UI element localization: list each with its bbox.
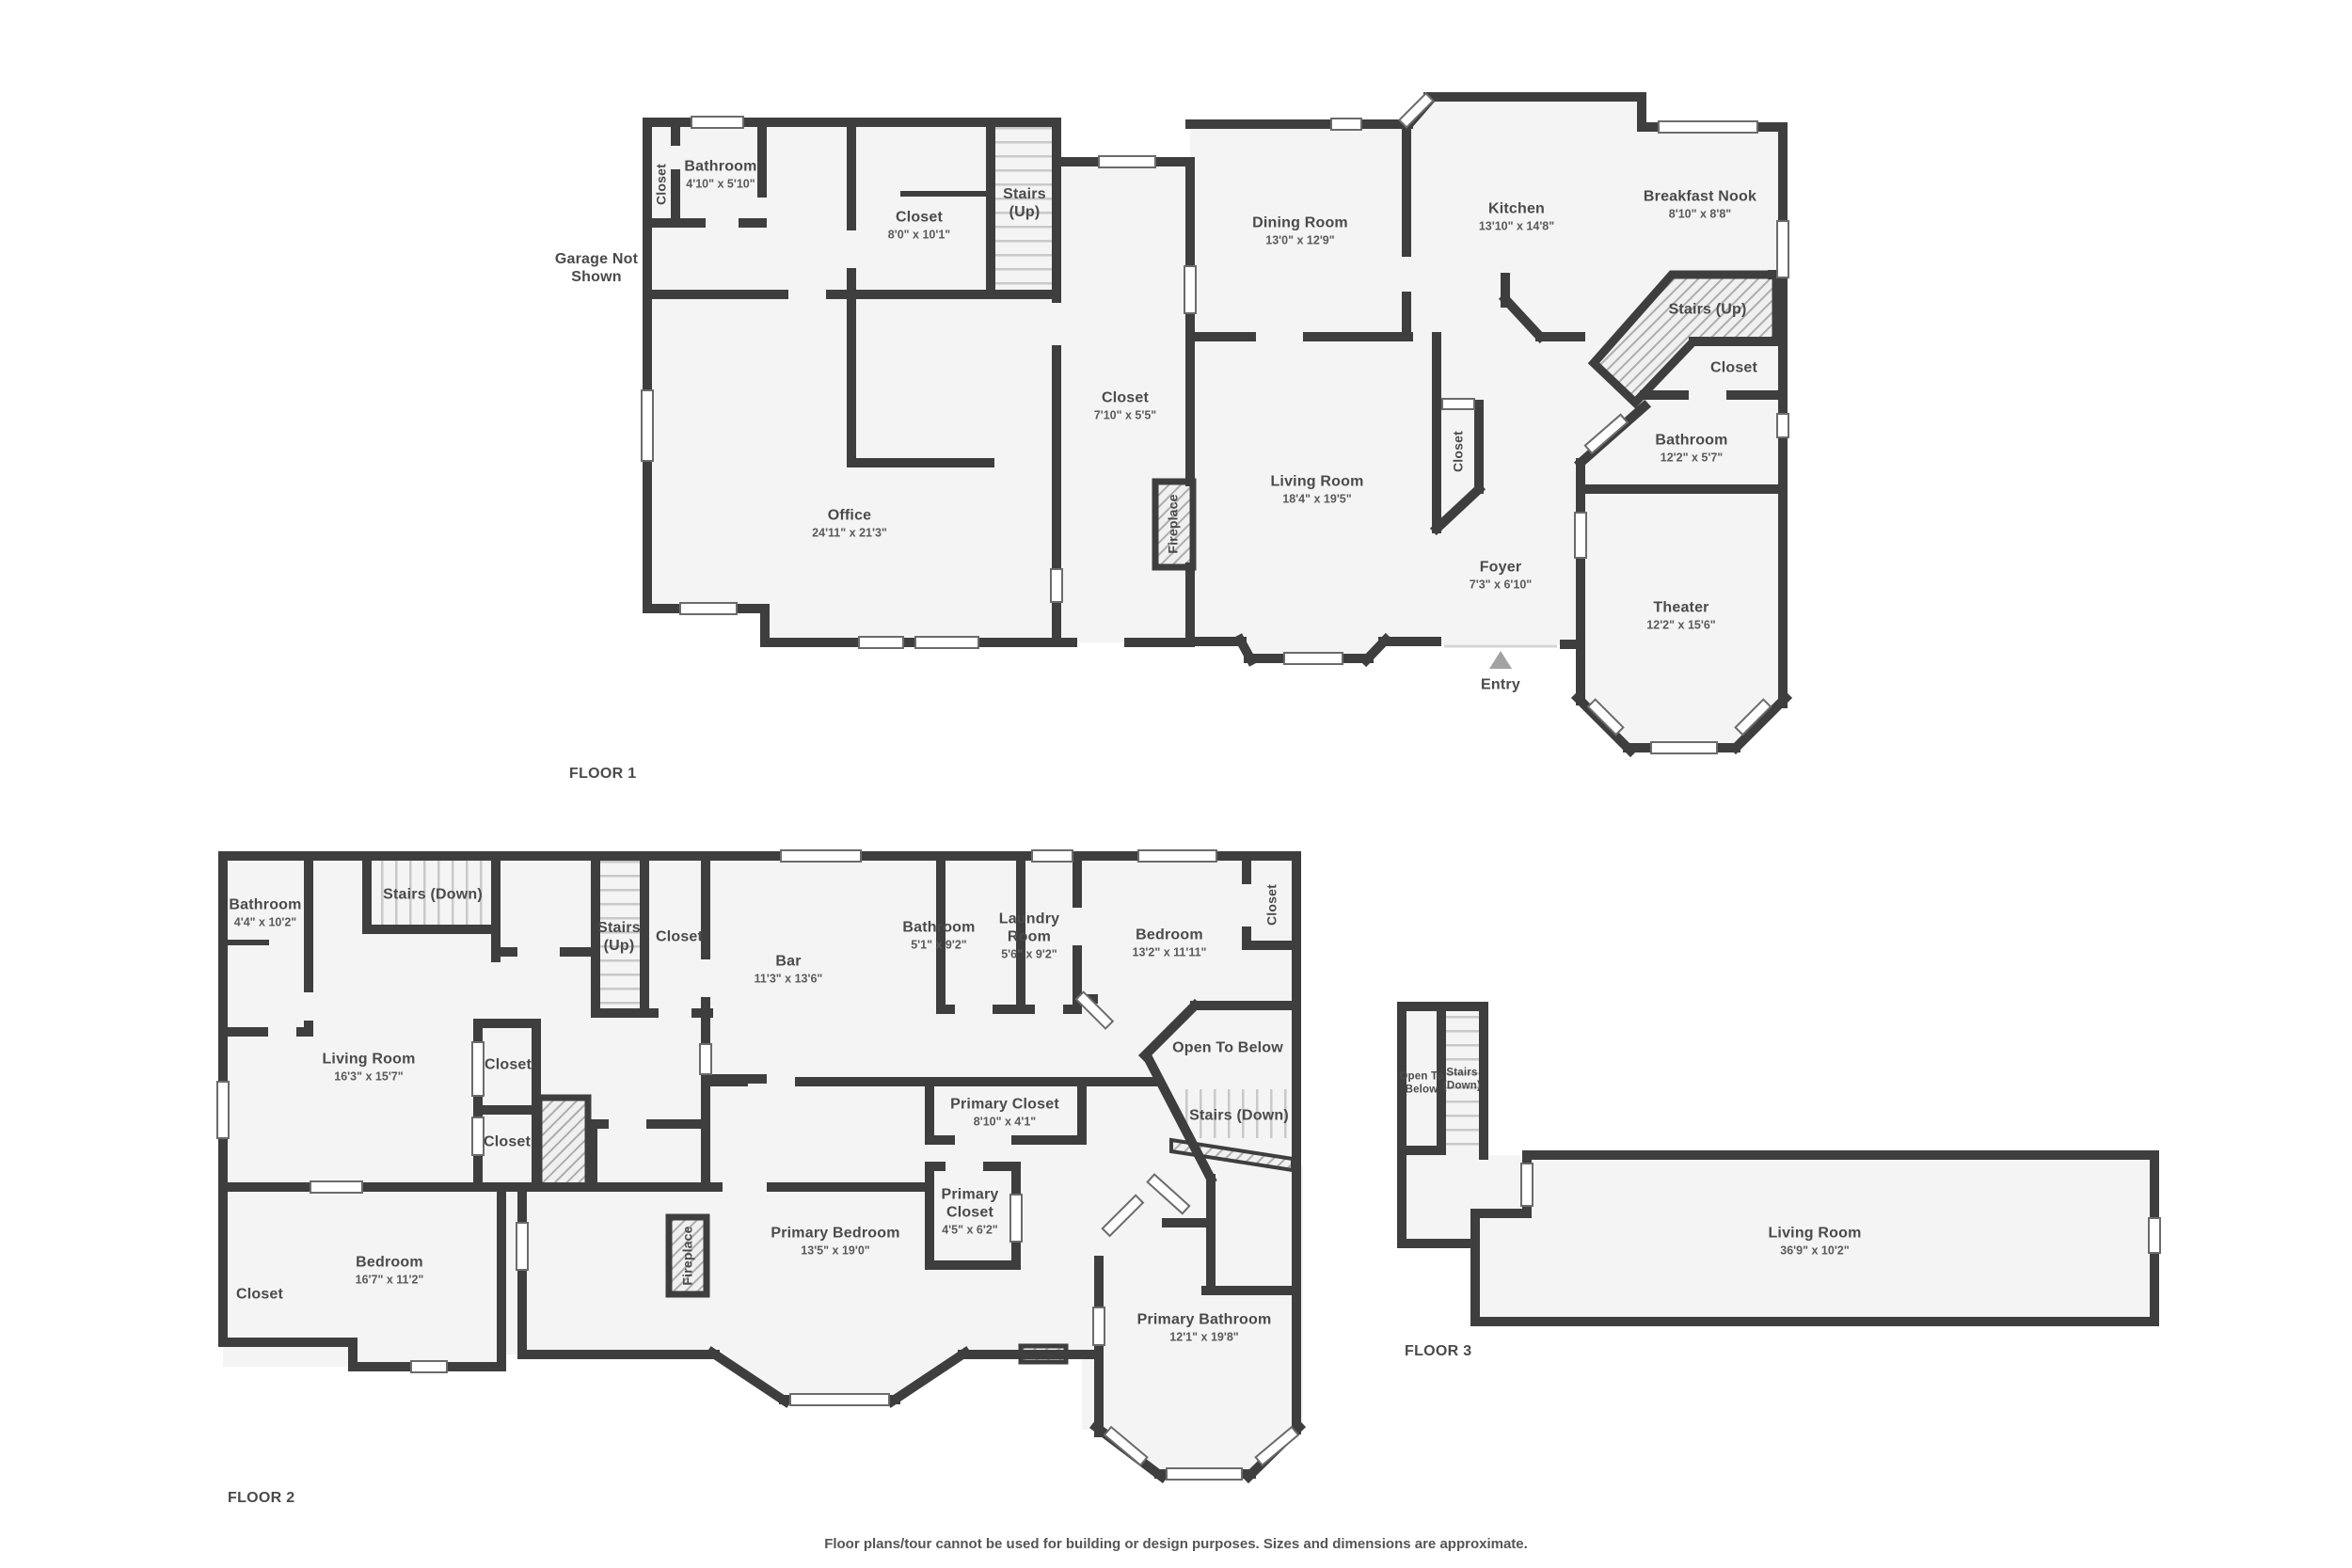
room-label-primary-closet: Primary Closet8'10" x 4'1" [950, 1097, 1059, 1130]
room-name: Living Room [1768, 1226, 1861, 1243]
room-dims: 7'10" x 5'5" [1094, 409, 1156, 423]
room-name: Bathroom [684, 159, 756, 177]
room-label-kitchen: Kitchen13'10" x 14'8" [1479, 201, 1554, 234]
room-dims: 16'7" x 11'2" [356, 1274, 424, 1288]
room-dims: 5'6" x 9'2" [989, 947, 1070, 961]
room-name: Breakfast Nook [1644, 189, 1756, 207]
room-label-foyer: Foyer7'3" x 6'10" [1470, 560, 1532, 593]
room-name: Closet [654, 164, 670, 205]
room-dims: 8'0" x 10'1" [888, 229, 950, 243]
room-name: Stairs (Down) [1189, 1108, 1289, 1126]
room-name: Closet [485, 1057, 532, 1075]
room-label-stairs-down: Stairs (Down) [1189, 1108, 1289, 1126]
room-dims: 13'5" x 19'0" [771, 1244, 899, 1259]
room-name: Laundry Room [989, 911, 1070, 946]
room-label-fireplace: Fireplace [1166, 494, 1182, 553]
room-name: Closet [236, 1287, 283, 1305]
room-dims: 13'10" x 14'8" [1479, 220, 1554, 234]
room-name: Theater [1646, 600, 1715, 618]
room-name: Office [812, 508, 887, 526]
room-dims: 13'2" x 11'11" [1133, 946, 1207, 960]
room-name: Open To Below [1172, 1040, 1283, 1058]
room-name: Bedroom [1133, 927, 1207, 945]
room-dims: 8'10" x 4'1" [950, 1116, 1059, 1130]
room-dims: 12'2" x 5'7" [1655, 451, 1727, 466]
room-dims: 16'3" x 15'7" [322, 1070, 415, 1085]
room-label-closet: Closet [485, 1057, 532, 1075]
room-name: Primary Bedroom [771, 1226, 899, 1243]
room-label-closet: Closet [484, 1134, 531, 1152]
room-dims: 5'1" x 9'2" [902, 939, 975, 953]
room-name: Entry [1481, 677, 1520, 695]
room-name: Bar [755, 954, 823, 972]
room-name: Bedroom [356, 1255, 424, 1273]
room-name: Closet [484, 1134, 531, 1152]
room-dims: 12'2" x 15'6" [1646, 619, 1715, 633]
room-dims: 11'3" x 13'6" [755, 973, 823, 987]
room-name: Closet [1264, 884, 1280, 926]
chimney-shaft-hatch-floor2 [539, 1098, 588, 1187]
room-label-laundry-room: Laundry Room5'6" x 9'2" [989, 911, 1070, 961]
room-label-stairs-down: Stairs (Down) [1434, 1067, 1490, 1092]
room-label-stairs-up: Stairs (Up) [1668, 302, 1746, 320]
room-label-bar: Bar11'3" x 13'6" [755, 954, 823, 987]
room-label-bedroom: Bedroom13'2" x 11'11" [1133, 927, 1207, 960]
room-name: Primary Closet [950, 1097, 1059, 1115]
room-label-breakfast-nook: Breakfast Nook8'10" x 8'8" [1644, 189, 1756, 222]
room-dims: 8'10" x 8'8" [1644, 208, 1756, 222]
disclaimer-text: Floor plans/tour cannot be used for buil… [0, 1536, 2352, 1552]
floor-3-title: FLOOR 3 [1405, 1343, 1471, 1360]
room-name: Primary Bathroom [1137, 1312, 1272, 1330]
room-name: Living Room [322, 1052, 415, 1069]
room-dims: 24'11" x 21'3" [812, 527, 887, 541]
room-dims: 7'3" x 6'10" [1470, 578, 1532, 593]
room-label-fireplace: Fireplace [680, 1226, 696, 1285]
room-name: Bathroom [1655, 433, 1727, 451]
room-name: Foyer [1470, 560, 1532, 578]
room-dims: 12'1" x 19'8" [1137, 1331, 1272, 1345]
room-label-closet: Closet [236, 1287, 283, 1305]
floor-1-title: FLOOR 1 [569, 766, 636, 783]
room-label-closet: Closet [656, 929, 703, 947]
room-dims: 18'4" x 19'5" [1270, 493, 1363, 507]
room-name: Kitchen [1479, 201, 1554, 219]
room-name: Fireplace [680, 1226, 696, 1285]
room-name: Primary Closet [928, 1186, 1012, 1222]
room-label-living-room: Living Room16'3" x 15'7" [322, 1052, 415, 1085]
room-label-living-room: Living Room18'4" x 19'5" [1270, 474, 1363, 507]
room-label-primary-closet: Primary Closet4'5" x 6'2" [928, 1186, 1012, 1237]
room-label-stairs-up: Stairs (Up) [997, 186, 1052, 222]
room-label-bedroom: Bedroom16'7" x 11'2" [356, 1255, 424, 1288]
room-label-stairs-down: Stairs (Down) [383, 887, 483, 905]
room-name: Bathroom [902, 920, 975, 938]
room-label-closet: Closet [1451, 431, 1467, 472]
room-label-closet: Closet7'10" x 5'5" [1094, 390, 1156, 423]
room-label-closet: Closet [654, 164, 670, 205]
floor-2-title: FLOOR 2 [228, 1490, 294, 1507]
room-label-living-room: Living Room36'9" x 10'2" [1768, 1226, 1861, 1259]
room-name: Closet [888, 210, 950, 228]
room-name: Closet [1451, 431, 1467, 472]
room-name: Closet [1094, 390, 1156, 408]
room-name: Stairs (Up) [1668, 302, 1746, 320]
floor-3-plan [1402, 1006, 2160, 1322]
room-label-garage-not-shown: Garage Not Shown [544, 251, 649, 287]
room-label-closet: Closet [1710, 360, 1757, 378]
room-name: Stairs (Up) [592, 920, 646, 956]
room-label-bathroom: Bathroom4'4" x 10'2" [229, 897, 301, 930]
room-label-open-to-below: Open To Below [1172, 1040, 1283, 1058]
room-label-stairs-up: Stairs (Up) [592, 920, 646, 956]
room-label-office: Office24'11" x 21'3" [812, 508, 887, 541]
room-name: Closet [1710, 360, 1757, 378]
room-name: Bathroom [229, 897, 301, 915]
room-dims: 4'4" x 10'2" [229, 916, 301, 930]
room-label-bathroom: Bathroom4'10" x 5'10" [684, 159, 756, 192]
room-name: Stairs (Up) [997, 186, 1052, 222]
room-dims: 4'5" x 6'2" [928, 1223, 1012, 1237]
room-label-primary-bathroom: Primary Bathroom12'1" x 19'8" [1137, 1312, 1272, 1345]
room-name: Stairs (Down) [1434, 1067, 1490, 1092]
room-label-bathroom: Bathroom12'2" x 5'7" [1655, 433, 1727, 466]
floor-1-plan [642, 93, 1788, 753]
room-name: Stairs (Down) [383, 887, 483, 905]
room-label-closet: Closet [1264, 884, 1280, 926]
room-dims: 36'9" x 10'2" [1768, 1244, 1861, 1259]
room-name: Garage Not Shown [544, 251, 649, 287]
room-label-closet: Closet8'0" x 10'1" [888, 210, 950, 243]
entry-arrow-icon [1489, 651, 1512, 669]
room-label-theater: Theater12'2" x 15'6" [1646, 600, 1715, 633]
room-label-entry: Entry [1481, 677, 1520, 695]
room-dims: 13'0" x 12'9" [1252, 234, 1348, 248]
floorplan-canvas: ClosetBathroom4'10" x 5'10"Closet8'0" x … [0, 0, 2352, 1568]
room-name: Living Room [1270, 474, 1363, 492]
room-name: Fireplace [1166, 494, 1182, 553]
room-label-bathroom: Bathroom5'1" x 9'2" [902, 920, 975, 953]
room-name: Closet [656, 929, 703, 947]
room-dims: 4'10" x 5'10" [684, 178, 756, 192]
room-name: Dining Room [1252, 215, 1348, 233]
room-label-primary-bedroom: Primary Bedroom13'5" x 19'0" [771, 1226, 899, 1259]
room-label-dining-room: Dining Room13'0" x 12'9" [1252, 215, 1348, 248]
